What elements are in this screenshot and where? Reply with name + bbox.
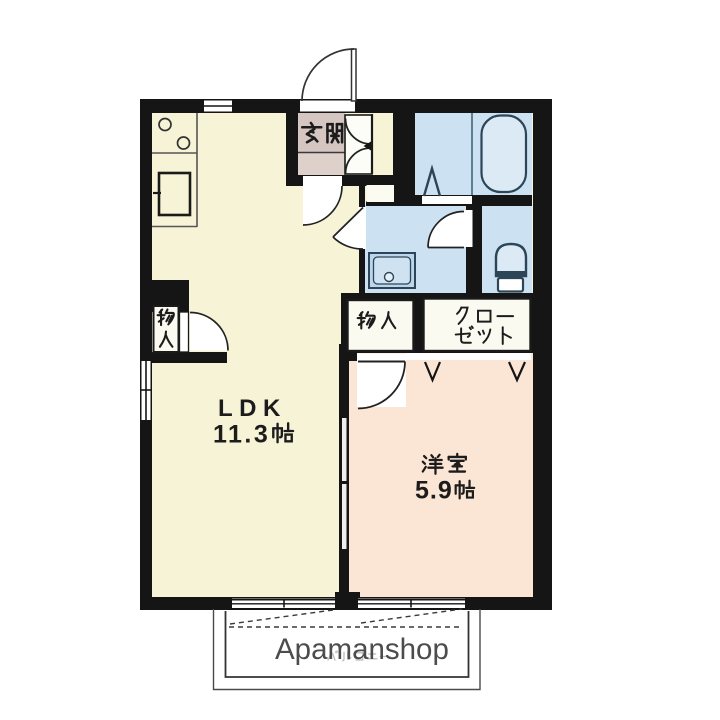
svg-text:5.9: 5.9: [415, 477, 453, 505]
svg-text:Apamanshop: Apamanshop: [275, 633, 449, 666]
svg-text:LDK: LDK: [218, 395, 287, 422]
svg-text:11.3: 11.3: [213, 421, 270, 449]
